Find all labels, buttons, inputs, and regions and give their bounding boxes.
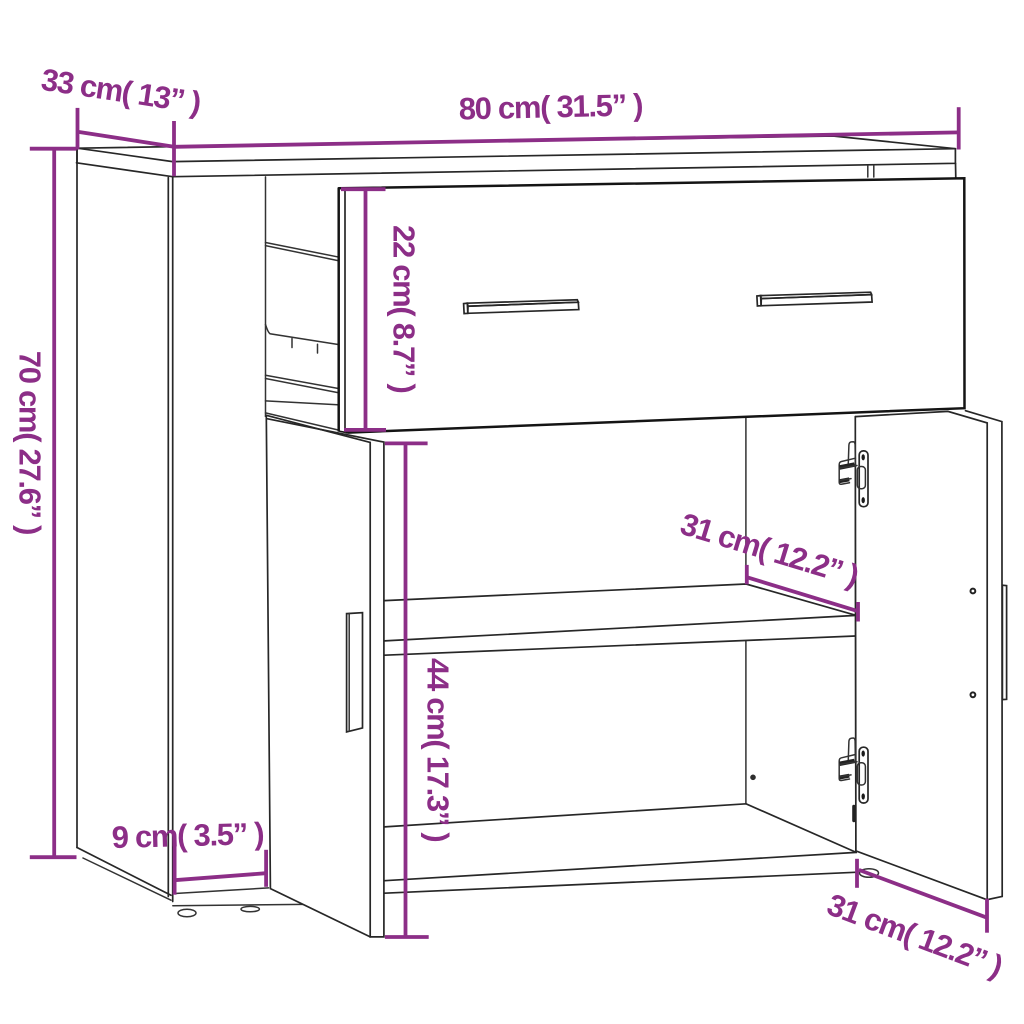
- svg-text:80 cm( 31.5” ): 80 cm( 31.5” ): [458, 87, 642, 126]
- svg-text:44 cm( 17.3” ): 44 cm( 17.3” ): [421, 658, 456, 841]
- svg-text:9 cm( 3.5” ): 9 cm( 3.5” ): [111, 816, 263, 855]
- svg-text:70 cm( 27.6” ): 70 cm( 27.6” ): [13, 351, 48, 534]
- svg-text:22 cm( 8.7” ): 22 cm( 8.7” ): [387, 225, 422, 392]
